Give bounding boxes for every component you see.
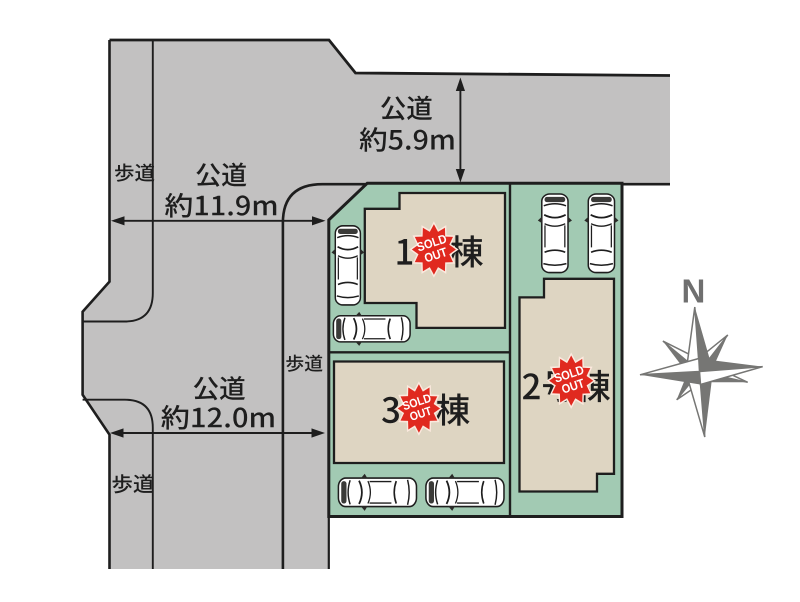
svg-text:N: N <box>682 273 706 310</box>
